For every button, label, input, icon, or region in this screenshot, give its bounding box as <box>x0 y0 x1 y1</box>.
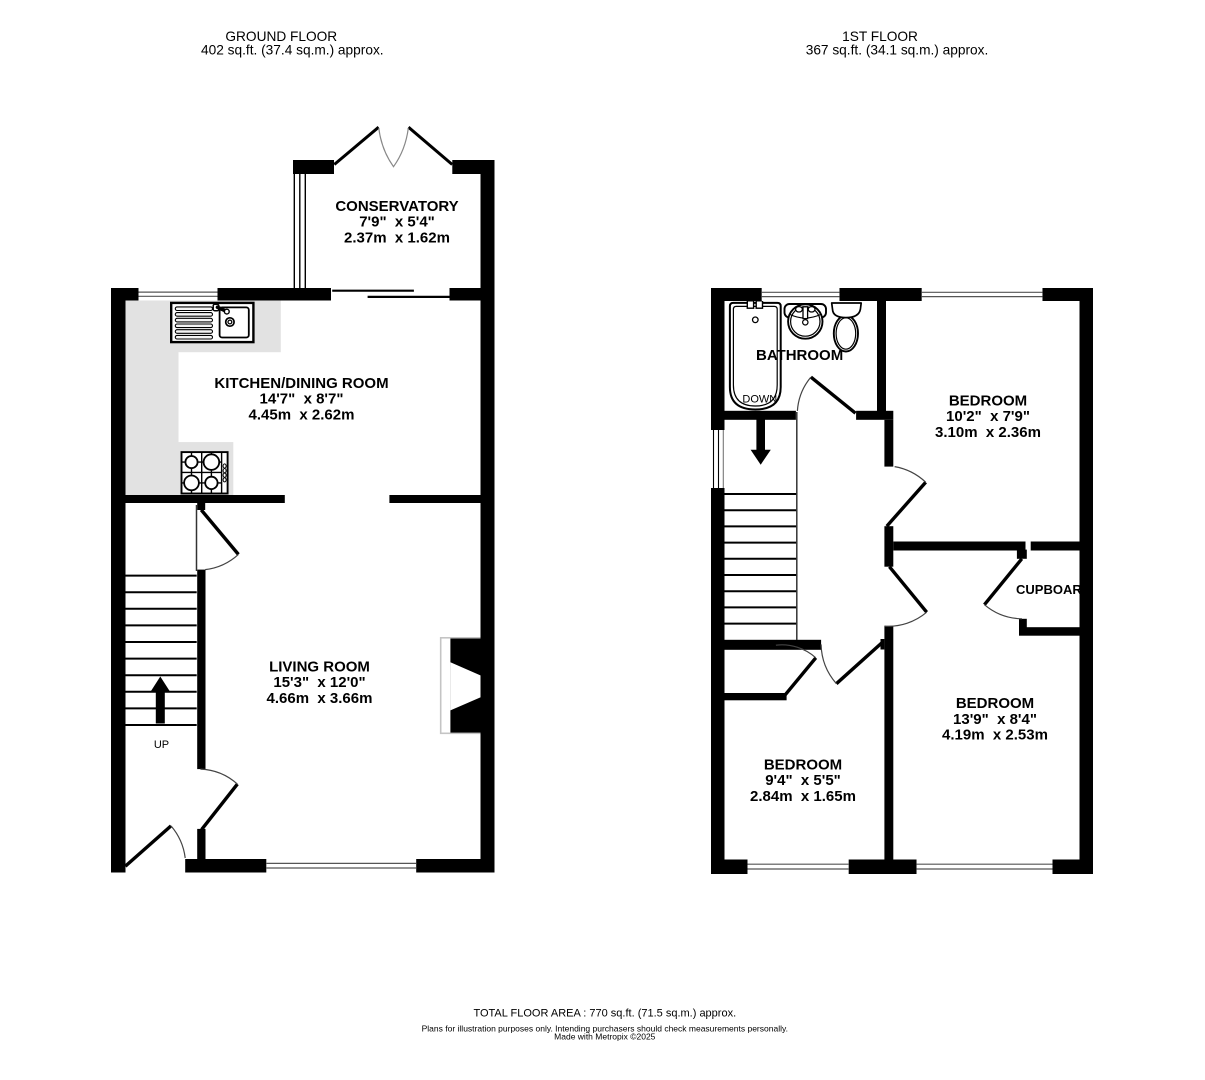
svg-text:3.10m x 2.36m: 3.10m x 2.36m <box>935 424 1041 441</box>
svg-text:LIVING ROOM: LIVING ROOM <box>269 659 370 676</box>
svg-text:BEDROOM: BEDROOM <box>956 695 1034 712</box>
svg-text:367 sq.ft. (34.1 sq.m.) approx: 367 sq.ft. (34.1 sq.m.) approx. <box>806 42 989 57</box>
svg-text:DOWN: DOWN <box>742 394 777 406</box>
svg-text:BATHROOM: BATHROOM <box>756 347 843 364</box>
svg-text:CUPBOARD: CUPBOARD <box>1016 582 1091 597</box>
svg-text:15'3" x 12'0": 15'3" x 12'0" <box>273 674 365 691</box>
svg-text:402 sq.ft. (37.4 sq.m.) approx: 402 sq.ft. (37.4 sq.m.) approx. <box>201 42 384 57</box>
svg-text:4.45m x 2.62m: 4.45m x 2.62m <box>249 406 355 423</box>
svg-text:10'2" x 7'9": 10'2" x 7'9" <box>946 408 1030 425</box>
svg-text:KITCHEN/DINING ROOM: KITCHEN/DINING ROOM <box>214 375 388 392</box>
svg-text:14'7" x 8'7": 14'7" x 8'7" <box>260 391 344 408</box>
svg-text:CONSERVATORY: CONSERVATORY <box>335 198 458 215</box>
svg-text:4.19m x 2.53m: 4.19m x 2.53m <box>942 727 1048 744</box>
svg-text:BEDROOM: BEDROOM <box>764 756 842 773</box>
svg-text:UP: UP <box>154 739 169 751</box>
svg-text:Made with Metropix ©2025: Made with Metropix ©2025 <box>554 1031 656 1041</box>
svg-text:TOTAL FLOOR AREA : 770 sq.ft.: TOTAL FLOOR AREA : 770 sq.ft. (71.5 sq.m… <box>473 1008 736 1020</box>
svg-text:2.37m x 1.62m: 2.37m x 1.62m <box>344 229 450 246</box>
svg-text:13'9" x 8'4": 13'9" x 8'4" <box>953 711 1037 728</box>
svg-text:4.66m x 3.66m: 4.66m x 3.66m <box>267 690 373 707</box>
svg-text:9'4" x 5'5": 9'4" x 5'5" <box>765 772 841 789</box>
svg-text:7'9" x 5'4": 7'9" x 5'4" <box>359 214 435 231</box>
svg-text:BEDROOM: BEDROOM <box>949 393 1027 410</box>
svg-text:2.84m x 1.65m: 2.84m x 1.65m <box>750 788 856 805</box>
